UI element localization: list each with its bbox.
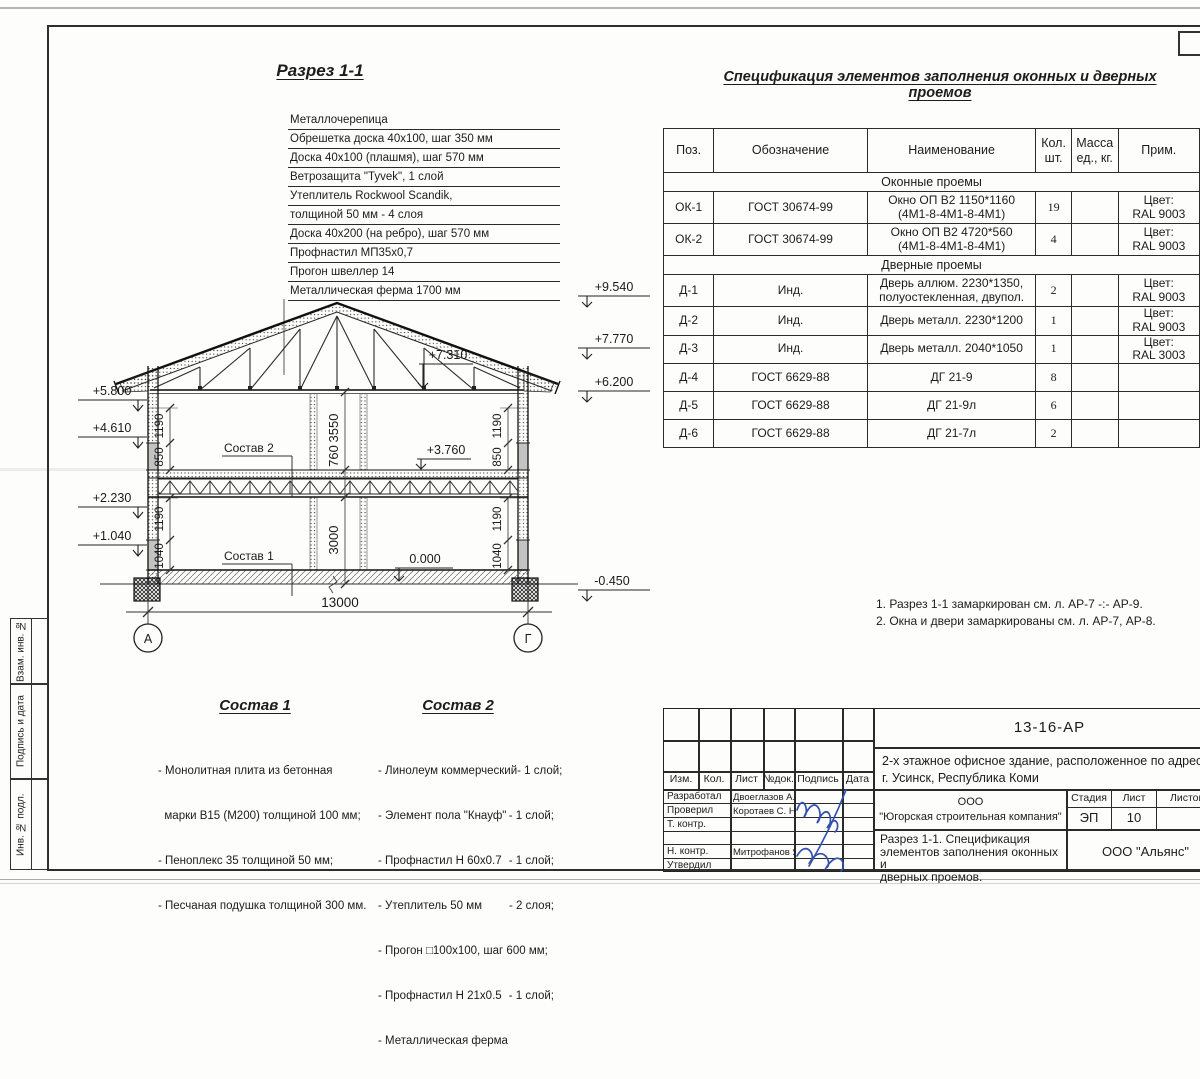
dim-right-lower-1190: 1190 [492,507,504,532]
cell-pos: Д-5 [664,392,714,420]
roof-layer: Металлическая ферма 1700 мм [288,282,560,301]
tb-project: 2-х этажное офисное здание, расположенно… [882,753,1200,787]
cell-name: Дверь аллюм. 2230*1350, полуостекленная,… [867,275,1035,307]
sostav2-item: - Утеплитель 50 мм [378,899,482,914]
scanned-drawing-sheet: { "frame": { "sidebar_labels": ["Взам. и… [0,0,1200,900]
dim-right-lower-1040: 1040 [492,543,504,569]
tb-role-proveril: Проверил [664,804,733,816]
tb-role-utverdil: Утвердил [664,859,733,871]
sostav2-qty: - 1 слой; [517,764,562,779]
cell-pos: Д-1 [664,275,714,307]
cell-pos: Д-2 [664,307,714,336]
elev-6200: +6.200 [595,375,634,389]
cell-pos: Д-6 [664,420,714,448]
cell-des: ГОСТ 30674-99 [714,192,868,224]
roof-layer: Профнастил МП35х0,7 [288,244,560,263]
tb-stage-value: ЭП [1067,810,1111,825]
col-qty: Кол. шт. [1036,129,1072,173]
table-row: Д-5 ГОСТ 6629-88 ДГ 21-9л 6 [664,392,1200,420]
cell-qty: 1 [1036,335,1072,364]
callout-sostav2: Состав 2 [224,441,274,455]
tb-organization: ООО "Югорская строительная компания" [875,795,1066,825]
axis-label-g: Г [525,632,532,646]
window-right-upper [518,443,528,470]
cell-mass [1071,335,1118,364]
cell-qty: 19 [1036,192,1072,224]
cell-name: ДГ 21-9л [867,392,1035,420]
tb-name-nkontr: Митрофанов Я. А. [731,845,795,858]
cell-des: ГОСТ 6629-88 [714,392,868,420]
cell-des: Инд. [714,335,868,364]
dim-13000: 13000 [321,595,359,610]
roof-layer: Обрешетка доска 40х100, шаг 350 мм [288,130,560,149]
cell-mass [1071,275,1118,307]
sostav2-item: - Металлическая ферма [378,1034,508,1049]
sostav2-title: Состав 2 [378,697,538,714]
table-row: Д-2 Инд. Дверь металл. 2230*1200 1 Цвет:… [664,307,1200,336]
cell-qty: 2 [1036,420,1072,448]
table-row: Д-3 Инд. Дверь металл. 2040*1050 1 Цвет:… [664,335,1200,364]
tb-name-proveril: Коротаев С. Н. [731,804,795,817]
sidebar-label-podpis: Подпись и дата [11,685,31,778]
corner-stamp-box [1178,31,1200,56]
cell-qty: 4 [1036,224,1072,256]
sostav2-item: - Линолеум коммерческий [378,764,517,779]
elev-7310: +7.310 [429,348,468,362]
signatures [789,784,859,874]
cell-des: ГОСТ 6629-88 [714,420,868,448]
table-row: Д-4 ГОСТ 6629-88 ДГ 21-9 8 [664,364,1200,392]
cell-des: Инд. [714,275,868,307]
sidebar-cell-inv: Инв. № подл. [10,779,48,870]
cell-des: ГОСТ 30674-99 [714,224,868,256]
tb-sheet-label: Лист [1112,792,1156,804]
elev-3760: +3.760 [427,443,466,457]
spec-table: Поз. Обозначение Наименование Кол. шт. М… [663,128,1200,448]
tb-role-razrabotal: Разработал [664,790,733,802]
cell-qty: 6 [1036,392,1072,420]
sostav2-item: - Элемент пола "Кнауф" [378,809,506,824]
cell-note: Цвет: RAL 9003 [1118,224,1199,256]
sidebar-divider [31,780,32,869]
col-name: Наименование [867,129,1035,173]
cell-name: ДГ 21-7л [867,420,1035,448]
window-right-lower [518,540,528,570]
title-block: Изм. Кол. Лист №док. Подпись Дата Разраб… [663,708,1200,872]
spec-title: Спецификация элементов заполнения оконны… [700,69,1180,101]
cell-mass [1071,192,1118,224]
dim-left-upper-850: 850 [154,447,166,466]
sidebar-divider [31,685,32,778]
sostav2-qty: - 1 слой; [509,989,554,1004]
roof-layer: Доска 40х200 (на ребро), шаг 570 мм [288,225,560,244]
sostav2-item: - Прогон □100х100, шаг 600 мм; [378,944,548,959]
elev-4610: +4.610 [93,421,132,435]
dim-h2-3550: 3550 [326,414,341,443]
roof-layer: Ветрозащита "Tyvek", 1 слой [288,168,560,187]
spec-table-wrap: Поз. Обозначение Наименование Кол. шт. М… [663,128,1200,448]
tb-contractor: ООО "Альянс" [1067,844,1200,859]
tb-sheet-title: Разрез 1-1. Спецификация элементов запол… [880,833,1066,883]
callout-sostav1: Состав 1 [224,549,274,563]
tb-col-kol: Кол. [698,773,730,785]
elev-2230: +2.230 [93,491,132,505]
elev-neg0450: -0.450 [594,574,629,588]
foundation-right [512,578,538,601]
roof-layer: толщиной 50 мм - 4 слоя [288,206,560,225]
cell-name: Окно ОП В2 1150*1160 (4М1-8-4М1-8-4М1) [867,192,1035,224]
foundation-left [134,578,160,601]
table-row: Д-6 ГОСТ 6629-88 ДГ 21-7л 2 [664,420,1200,448]
dim-hf-760: 760 [326,445,341,467]
tb-col-list: Лист [730,773,763,785]
col-pos: Поз. [664,129,714,173]
elev-0000: 0.000 [409,552,440,566]
elev-7770: +7.770 [595,332,634,346]
tb-sheet-value: 10 [1112,810,1156,825]
cell-des: ГОСТ 6629-88 [714,364,868,392]
sostav1-title: Состав 1 [150,697,360,714]
cell-note: Цвет: RAL 9003 [1118,192,1199,224]
group-windows: Оконные проемы [664,173,1200,192]
cell-name: Окно ОП В2 4720*560 (4М1-8-4М1-8-4М1) [867,224,1035,256]
cell-mass [1071,224,1118,256]
tb-role-tkontr: Т. контр. [664,818,733,830]
cell-note: Цвет: RAL 9003 [1118,275,1199,307]
cell-note [1118,420,1199,448]
col-mass: Масса ед., кг. [1071,129,1118,173]
interfloor-slab [148,470,528,497]
sidebar-label-inv: Инв. № подл. [11,780,31,869]
dim-h1-3000: 3000 [326,526,341,555]
elev-9540: +9.540 [595,280,634,294]
tb-col-izm: Изм. [664,773,698,785]
cell-qty: 8 [1036,364,1072,392]
tb-role-nkontr: Н. контр. [664,845,733,857]
dim-left-lower-1190: 1190 [154,507,166,532]
tb-stage-label: Стадия [1067,792,1111,804]
sostav2-qty: - 1 слой; [509,854,554,869]
elev-5800: +5.800 [93,384,132,398]
cell-name: ДГ 21-9 [867,364,1035,392]
note-line: 1. Разрез 1-1 замаркирован см. л. АР-7 -… [876,596,1156,613]
cell-pos: Д-4 [664,364,714,392]
dim-left-upper-1190: 1190 [154,414,166,439]
cell-note [1118,392,1199,420]
roof-layers-callout: Металлочерепица Обрешетка доска 40х100, … [288,111,560,301]
elev-1040: +1.040 [93,529,132,543]
cell-qty: 1 [1036,307,1072,336]
cell-note [1118,364,1199,392]
table-row: Д-1 Инд. Дверь аллюм. 2230*1350, полуост… [664,275,1200,307]
roof-layer: Прогон швеллер 14 [288,263,560,282]
cell-des: Инд. [714,307,868,336]
cell-mass [1071,392,1118,420]
building-section-drawing: +5.800 +4.610 +2.230 +1.040 +9.540 +7.77… [0,0,660,690]
cell-note: Цвет: RAL 9003 [1118,307,1199,336]
cell-pos: ОК-1 [664,192,714,224]
tb-sheets-label: Листов [1157,792,1200,804]
sostav2-qty: - 1 слой; [509,809,554,824]
cell-note: Цвет: RAL 3003 [1118,335,1199,364]
cell-name: Дверь металл. 2230*1200 [867,307,1035,336]
sostav2-item: - Профнастил Н 21х0.5 [378,989,502,1004]
cell-mass [1071,364,1118,392]
cell-mass [1071,420,1118,448]
roof-layer: Утеплитель Rockwool Scandik, [288,187,560,206]
sidebar-cell-podpis: Подпись и дата [10,684,48,779]
roof-layer: Доска 40х100 (плашмя), шаг 570 мм [288,149,560,168]
table-row: ОК-2 ГОСТ 30674-99 Окно ОП В2 4720*560 (… [664,224,1200,256]
tb-doc-number: 13-16-АР [875,719,1200,736]
axis-label-a: А [144,632,153,646]
col-designation: Обозначение [714,129,868,173]
table-row: ОК-1 ГОСТ 30674-99 Окно ОП В2 1150*1160 … [664,192,1200,224]
cell-mass [1071,307,1118,336]
col-note: Прим. [1118,129,1199,173]
cell-name: Дверь металл. 2040*1050 [867,335,1035,364]
tb-role-empty [664,832,733,833]
dim-right-upper-1190: 1190 [492,414,504,439]
cell-pos: ОК-2 [664,224,714,256]
sostav2-qty: - 2 слоя; [509,899,554,914]
note-line: 2. Окна и двери замаркированы см. л. АР-… [876,613,1156,630]
dim-left-lower-1040: 1040 [154,543,166,569]
dim-right-upper-850: 850 [492,447,504,466]
notes: 1. Разрез 1-1 замаркирован см. л. АР-7 -… [876,596,1156,630]
cell-qty: 2 [1036,275,1072,307]
tb-name-razrabotal: Двоеглазов А. В. [731,790,795,803]
roof-layer: Металлочерепица [288,111,560,130]
sostav2-block: Состав 2 - Линолеум коммерческий- 1 слой… [378,697,578,1079]
group-doors: Дверные проемы [664,256,1200,275]
cell-pos: Д-3 [664,335,714,364]
sostav2-item: - Профнастил Н 60х0.7 [378,854,502,869]
